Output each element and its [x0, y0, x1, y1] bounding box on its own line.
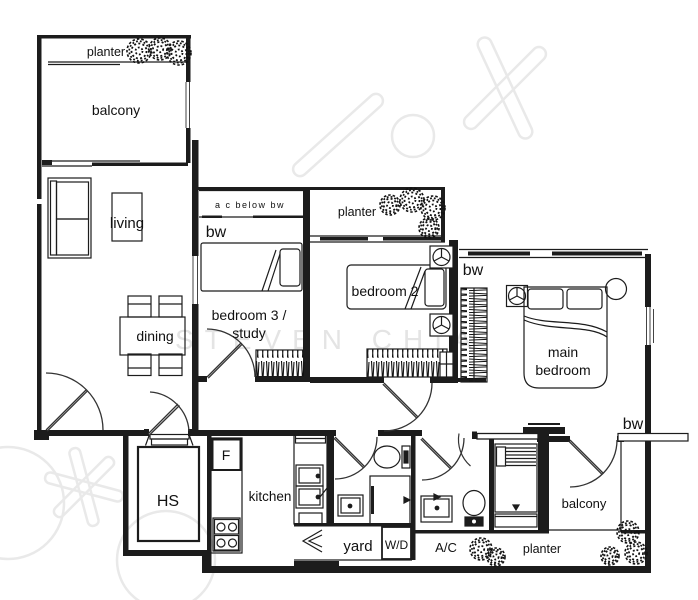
- svg-text:bw: bw: [206, 224, 227, 241]
- svg-text:bw: bw: [623, 416, 644, 433]
- svg-text:living: living: [110, 215, 144, 232]
- svg-text:a c below bw: a c below bw: [215, 200, 285, 210]
- svg-text:W/D: W/D: [385, 538, 409, 552]
- svg-text:bedroom 3 /: bedroom 3 /: [212, 307, 287, 323]
- svg-text:main: main: [548, 344, 578, 360]
- svg-text:HS: HS: [157, 493, 179, 510]
- svg-text:balcony: balcony: [562, 496, 607, 511]
- svg-text:planter: planter: [523, 542, 561, 556]
- svg-text:yard: yard: [343, 538, 372, 555]
- svg-text:bw: bw: [463, 262, 484, 279]
- svg-text:balcony: balcony: [92, 102, 140, 118]
- svg-text:dining: dining: [136, 328, 173, 344]
- svg-text:A/C: A/C: [435, 540, 457, 555]
- svg-text:study: study: [232, 325, 265, 341]
- svg-text:kitchen: kitchen: [249, 489, 292, 504]
- svg-text:planter: planter: [87, 45, 125, 59]
- svg-text:planter: planter: [338, 205, 376, 219]
- svg-text:bedroom: bedroom: [535, 362, 590, 378]
- svg-text:F: F: [222, 447, 231, 463]
- svg-text:bedroom 2: bedroom 2: [352, 283, 419, 299]
